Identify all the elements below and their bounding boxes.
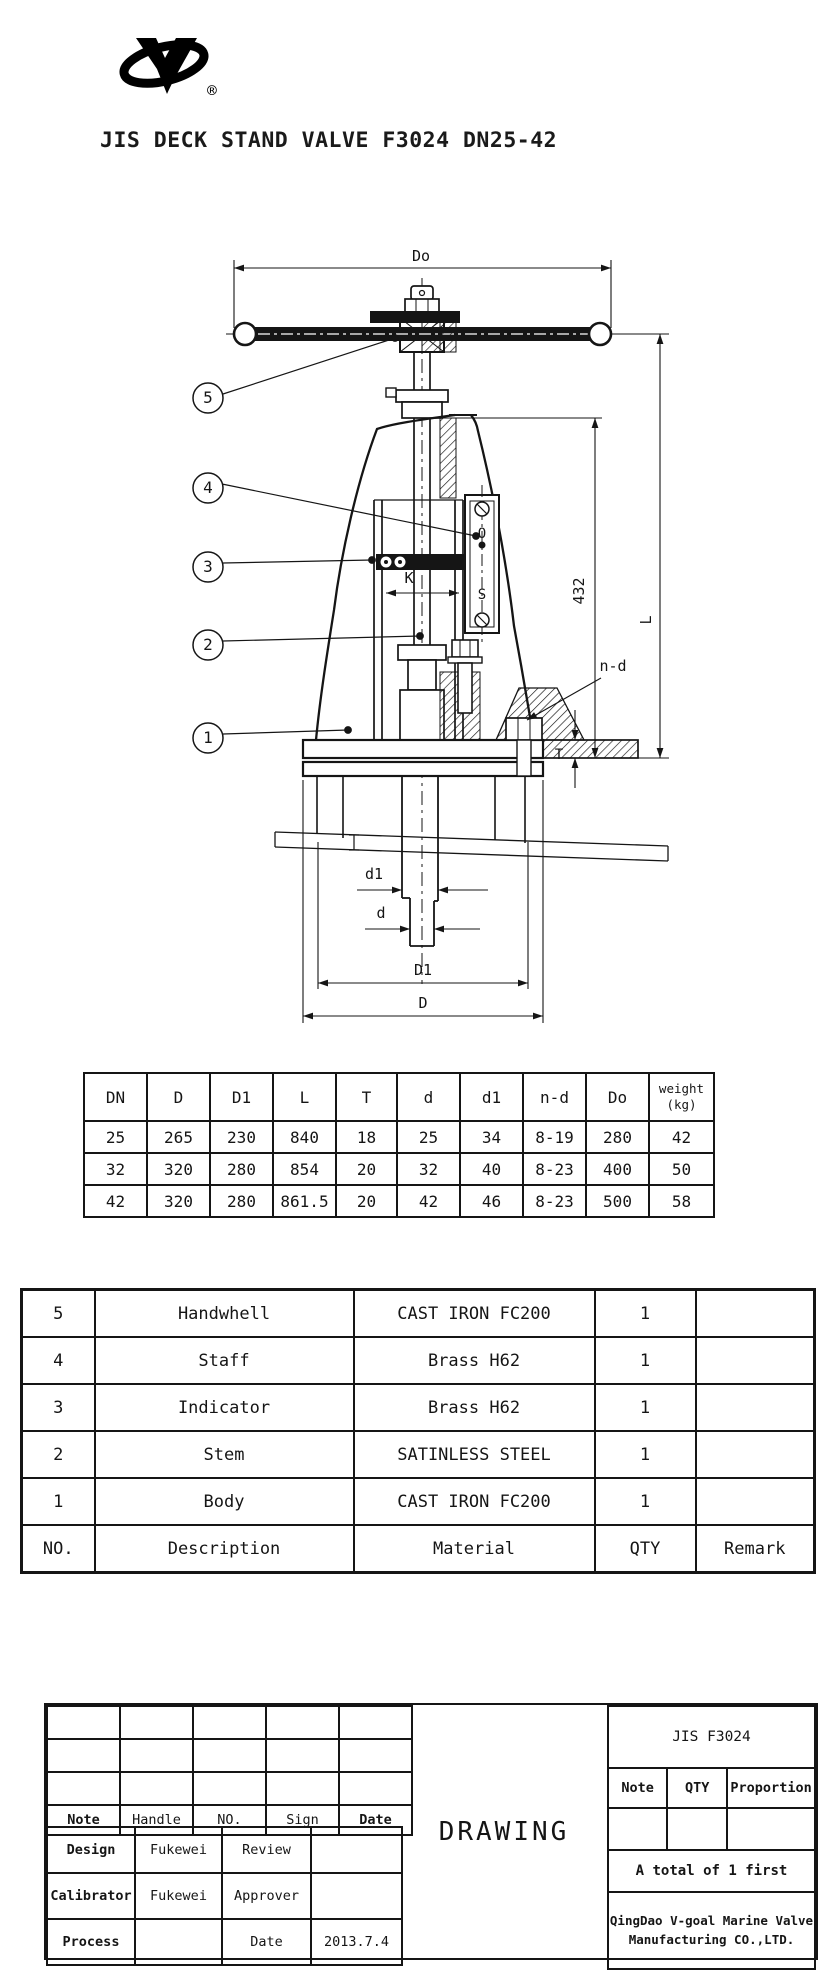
- dim-cell: 46: [460, 1185, 523, 1217]
- dim-cell: 50: [649, 1153, 714, 1185]
- empty-cell: [266, 1706, 339, 1739]
- dim-cell: 280: [586, 1121, 649, 1153]
- dim-label-k: K: [404, 569, 413, 587]
- dim-cell: 40: [460, 1153, 523, 1185]
- indicator-shut-label: S: [478, 587, 486, 603]
- drawing-stamp-label: DRAWING: [439, 1817, 570, 1847]
- table-row: 32 320 280 854 20 32 40 8-23 400 50: [84, 1153, 714, 1185]
- dim-cell: 861.5: [273, 1185, 336, 1217]
- dim-header-cell: d1: [460, 1073, 523, 1121]
- part-no: 5: [22, 1290, 95, 1338]
- empty-cell: [47, 1772, 120, 1805]
- title-block-right-grid: JIS F3024 Note QTY Proportion A total of…: [607, 1705, 816, 1970]
- dim-cell: 500: [586, 1185, 649, 1217]
- dim-cell: 32: [397, 1153, 460, 1185]
- table-row: 3 Indicator Brass H62 1: [22, 1384, 815, 1431]
- dim-cell: 42: [397, 1185, 460, 1217]
- dim-cell: 280: [210, 1185, 273, 1217]
- callout-2: 2: [203, 635, 213, 654]
- table-row: [47, 1739, 412, 1772]
- dim-label-l: L: [637, 615, 655, 624]
- table-row: 4 Staff Brass H62 1: [22, 1337, 815, 1384]
- parts-footer-no: NO.: [22, 1525, 95, 1573]
- part-description: Body: [95, 1478, 354, 1525]
- empty-cell: [727, 1808, 815, 1850]
- right-qty-label: QTY: [667, 1768, 727, 1808]
- parts-footer-material: Material: [354, 1525, 595, 1573]
- part-description: Handwhell: [95, 1290, 354, 1338]
- part-no: 4: [22, 1337, 95, 1384]
- base-flange: [303, 740, 543, 758]
- table-row: [47, 1772, 412, 1805]
- callout-1: 1: [203, 728, 213, 747]
- dim-cell: 8-23: [523, 1185, 586, 1217]
- parts-table: 5 Handwhell CAST IRON FC200 1 4 Staff Br…: [20, 1288, 816, 1574]
- dim-header-cell: T: [336, 1073, 397, 1121]
- weight-unit: (kg): [650, 1097, 713, 1113]
- drawing-stamp: DRAWING: [401, 1705, 607, 1958]
- dim-header-cell: DN: [84, 1073, 147, 1121]
- part-material: SATINLESS STEEL: [354, 1431, 595, 1478]
- dim-header-cell: Do: [586, 1073, 649, 1121]
- table-row: [47, 1706, 412, 1739]
- title-block-upper-grid: Note Handle NO. Sign Date: [46, 1705, 413, 1836]
- dim-cell: 20: [336, 1153, 397, 1185]
- dim-cell: 840: [273, 1121, 336, 1153]
- dim-label-d1: d1: [365, 865, 383, 883]
- table-row: 2 Stem SATINLESS STEEL 1: [22, 1431, 815, 1478]
- dim-cell: 230: [210, 1121, 273, 1153]
- drawing-labels: Do L 432 K n-d T d1 d D1 D O S 5 4 3 2 1: [203, 247, 655, 1012]
- dim-header-cell: L: [273, 1073, 336, 1121]
- part-material: Brass H62: [354, 1384, 595, 1431]
- part-description: Indicator: [95, 1384, 354, 1431]
- dim-cell: 400: [586, 1153, 649, 1185]
- approver-label: Approver: [222, 1873, 311, 1919]
- empty-cell: [47, 1706, 120, 1739]
- dim-header-cell: D: [147, 1073, 210, 1121]
- review-value: [311, 1827, 402, 1873]
- date-field-label: Date: [222, 1919, 311, 1965]
- parts-footer-qty: QTY: [595, 1525, 696, 1573]
- empty-cell: [266, 1739, 339, 1772]
- part-no: 3: [22, 1384, 95, 1431]
- table-row: 5 Handwhell CAST IRON FC200 1: [22, 1290, 815, 1338]
- dim-cell: 8-19: [523, 1121, 586, 1153]
- table-row: Design Fukewei Review: [47, 1827, 402, 1873]
- sheet-total: A total of 1 first: [608, 1850, 815, 1892]
- registered-mark: ®: [207, 81, 217, 100]
- calibrator-value: Fukewei: [135, 1873, 222, 1919]
- title-block-lower-grid: Design Fukewei Review Calibrator Fukewei…: [46, 1826, 403, 1966]
- callout-5: 5: [203, 388, 213, 407]
- callout-3: 3: [203, 557, 213, 576]
- part-qty: 1: [595, 1384, 696, 1431]
- drawing-sheet: ® JIS DECK STAND VALVE F3024 DN25-42: [0, 0, 830, 1988]
- part-remark: [696, 1290, 815, 1338]
- dim-cell: 854: [273, 1153, 336, 1185]
- part-remark: [696, 1384, 815, 1431]
- approver-value: [311, 1873, 402, 1919]
- empty-cell: [193, 1772, 266, 1805]
- part-no: 1: [22, 1478, 95, 1525]
- dim-cell: 320: [147, 1185, 210, 1217]
- callout-4: 4: [203, 478, 213, 497]
- dim-header-cell: d: [397, 1073, 460, 1121]
- right-note-label: Note: [608, 1768, 667, 1808]
- centerlines: [226, 278, 618, 984]
- table-row: 1 Body CAST IRON FC200 1: [22, 1478, 815, 1525]
- valve-drawing: Do L 432 K n-d T d1 d D1 D O S 5 4 3 2 1: [0, 182, 830, 1062]
- page-title: JIS DECK STAND VALVE F3024 DN25-42: [100, 128, 557, 153]
- part-qty: 1: [595, 1290, 696, 1338]
- parts-footer-remark: Remark: [696, 1525, 815, 1573]
- dim-cell: 320: [147, 1153, 210, 1185]
- part-material: CAST IRON FC200: [354, 1290, 595, 1338]
- dim-cell: 18: [336, 1121, 397, 1153]
- empty-cell: [667, 1808, 727, 1850]
- dim-cell: 265: [147, 1121, 210, 1153]
- table-row: 25 265 230 840 18 25 34 8-19 280 42: [84, 1121, 714, 1153]
- design-value: Fukewei: [135, 1827, 222, 1873]
- empty-cell: [608, 1808, 667, 1850]
- part-remark: [696, 1478, 815, 1525]
- dim-cell: 42: [84, 1185, 147, 1217]
- part-qty: 1: [595, 1337, 696, 1384]
- dim-label-big-d: D: [418, 994, 427, 1012]
- indicator-open-label: O: [478, 526, 486, 542]
- part-material: Brass H62: [354, 1337, 595, 1384]
- dim-cell: 8-23: [523, 1153, 586, 1185]
- dim-header-cell-weight: weight (kg): [649, 1073, 714, 1121]
- dim-label-do: Do: [412, 247, 430, 265]
- empty-cell: [120, 1772, 193, 1805]
- dim-cell: 32: [84, 1153, 147, 1185]
- process-label: Process: [47, 1919, 135, 1965]
- weight-label: weight: [650, 1081, 713, 1097]
- table-row: A total of 1 first: [608, 1850, 815, 1892]
- design-label: Design: [47, 1827, 135, 1873]
- dim-cell: 25: [84, 1121, 147, 1153]
- part-remark: [696, 1431, 815, 1478]
- part-description: Stem: [95, 1431, 354, 1478]
- empty-cell: [266, 1772, 339, 1805]
- empty-cell: [193, 1739, 266, 1772]
- review-label: Review: [222, 1827, 311, 1873]
- dim-cell: 34: [460, 1121, 523, 1153]
- company-line2: Manufacturing CO.,LTD.: [609, 1931, 814, 1950]
- part-material: CAST IRON FC200: [354, 1478, 595, 1525]
- parts-footer-description: Description: [95, 1525, 354, 1573]
- company-name: QingDao V-goal Marine Valve Manufacturin…: [608, 1892, 815, 1969]
- parts-footer-row: NO. Description Material QTY Remark: [22, 1525, 815, 1573]
- dim-cell: 25: [397, 1121, 460, 1153]
- empty-cell: [193, 1706, 266, 1739]
- process-value: [135, 1919, 222, 1965]
- valve-geometry: [234, 286, 668, 946]
- part-description: Staff: [95, 1337, 354, 1384]
- part-no: 2: [22, 1431, 95, 1478]
- dim-header-cell: n-d: [523, 1073, 586, 1121]
- calibrator-label: Calibrator: [47, 1873, 135, 1919]
- dim-label-big-d1: D1: [414, 961, 432, 979]
- dim-label-d: d: [376, 904, 385, 922]
- dim-cell: 42: [649, 1121, 714, 1153]
- title-block: Note Handle NO. Sign Date Design Fukewei…: [44, 1703, 818, 1960]
- table-row: Calibrator Fukewei Approver: [47, 1873, 402, 1919]
- company-line1: QingDao V-goal Marine Valve: [609, 1912, 814, 1931]
- table-row: Process Date 2013.7.4: [47, 1919, 402, 1965]
- dim-cell: 58: [649, 1185, 714, 1217]
- part-qty: 1: [595, 1431, 696, 1478]
- table-row: Note QTY Proportion: [608, 1768, 815, 1808]
- dim-label-t: T: [555, 747, 564, 763]
- dim-header-cell: D1: [210, 1073, 273, 1121]
- table-row: QingDao V-goal Marine Valve Manufacturin…: [608, 1892, 815, 1969]
- empty-cell: [47, 1739, 120, 1772]
- empty-cell: [120, 1706, 193, 1739]
- dim-label-432: 432: [570, 577, 588, 604]
- table-row: 42 320 280 861.5 20 42 46 8-23 500 58: [84, 1185, 714, 1217]
- part-qty: 1: [595, 1478, 696, 1525]
- table-row: [608, 1808, 815, 1850]
- dimension-table: DN D D1 L T d d1 n-d Do weight (kg) 25 2…: [83, 1072, 715, 1218]
- right-proportion-label: Proportion: [727, 1768, 815, 1808]
- dim-cell: 280: [210, 1153, 273, 1185]
- table-row: JIS F3024: [608, 1706, 815, 1768]
- part-remark: [696, 1337, 815, 1384]
- empty-cell: [120, 1739, 193, 1772]
- dim-label-nd: n-d: [599, 657, 626, 675]
- date-value: 2013.7.4: [311, 1919, 402, 1965]
- model-number: JIS F3024: [608, 1706, 815, 1768]
- dim-cell: 20: [336, 1185, 397, 1217]
- deck-plate: [275, 832, 668, 861]
- brand-logo: ®: [112, 28, 224, 104]
